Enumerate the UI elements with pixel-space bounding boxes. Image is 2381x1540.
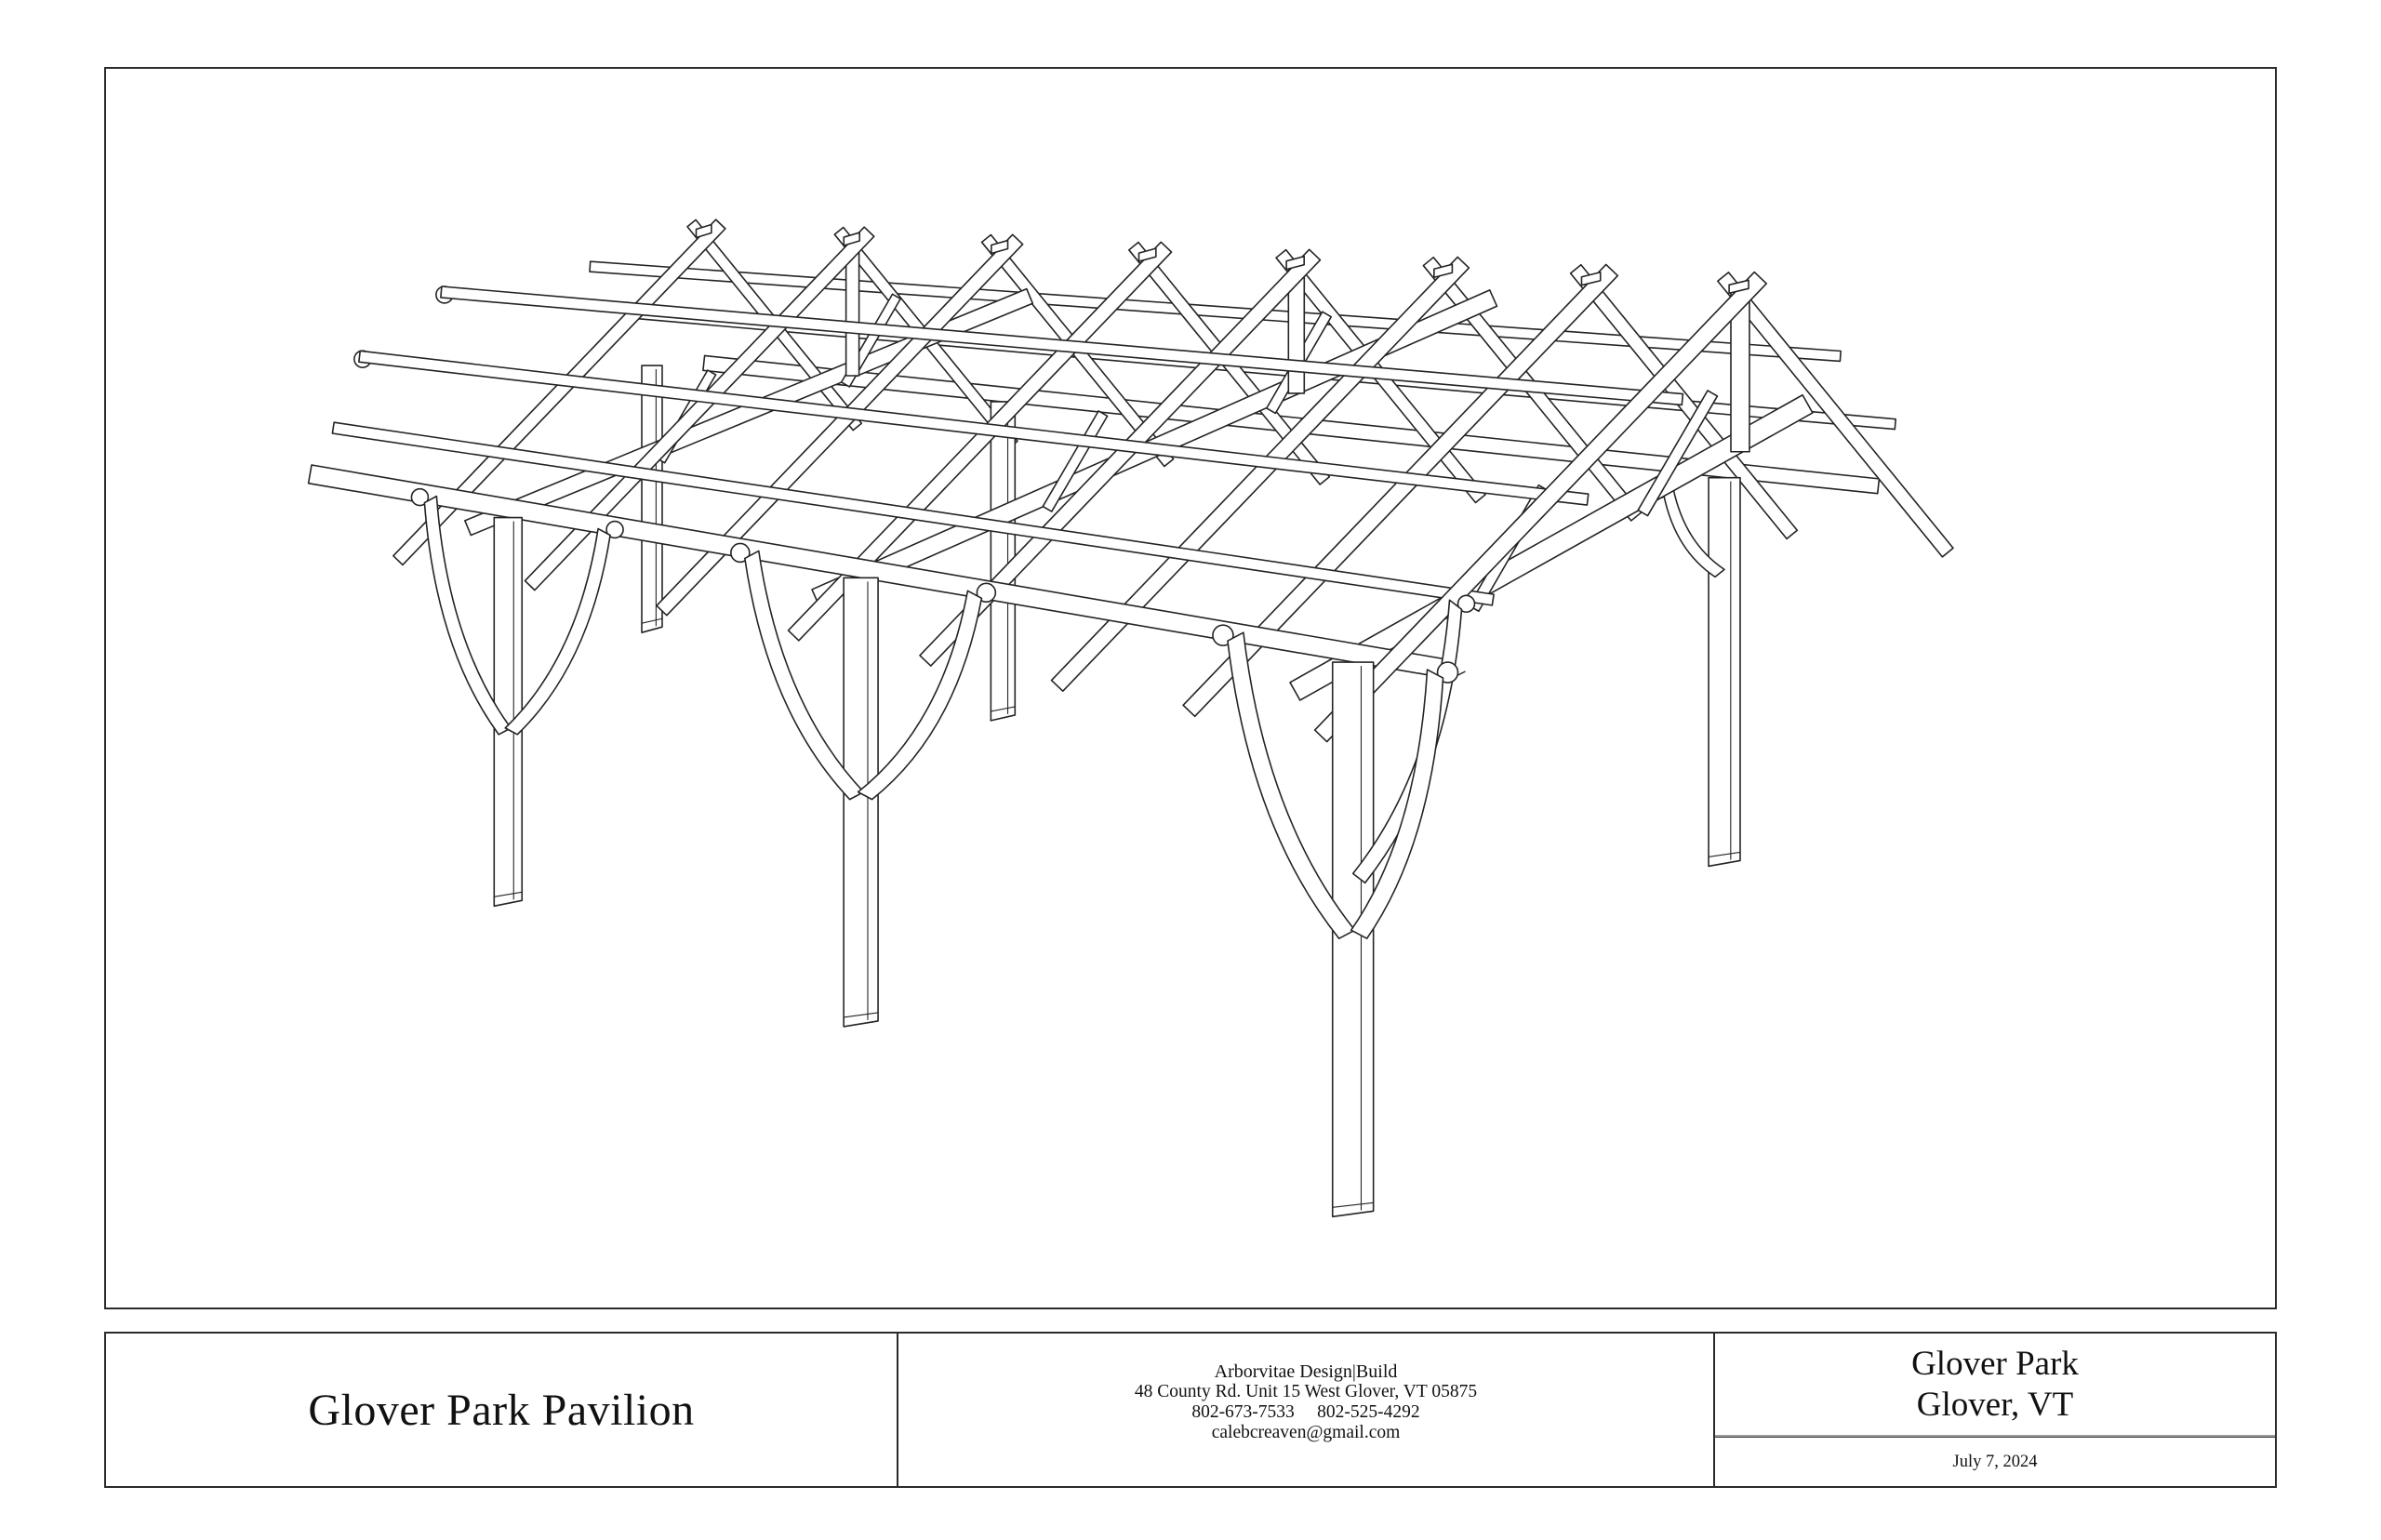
firm-email: calebcreaven@gmail.com xyxy=(1212,1423,1401,1443)
location-town: Glover, VT xyxy=(1917,1385,2073,1426)
title-block-project-cell: Glover Park Pavilion xyxy=(106,1334,897,1486)
title-block-location-cell: Glover Park Glover, VT July 7, 2024 xyxy=(1715,1334,2275,1486)
title-block: Glover Park Pavilion Arborvitae Design|B… xyxy=(104,1332,2277,1488)
drawing-viewport xyxy=(104,67,2277,1309)
post-front-mid xyxy=(844,577,878,1027)
firm-name: Arborvitae Design|Build xyxy=(1215,1361,1398,1382)
post-rear-near xyxy=(1709,478,1740,867)
title-block-firm-cell: Arborvitae Design|Build 48 County Rd. Un… xyxy=(897,1334,1715,1486)
post-front-near xyxy=(1333,662,1374,1216)
plan-sheet: Glover Park Pavilion Arborvitae Design|B… xyxy=(0,0,2381,1540)
sheet-date: July 7, 2024 xyxy=(1953,1453,2038,1472)
firm-phones: 802-673-7533 802-525-4292 xyxy=(1191,1402,1419,1423)
project-title: Glover Park Pavilion xyxy=(308,1385,694,1436)
date-cell: July 7, 2024 xyxy=(1715,1438,2275,1486)
location-name: Glover Park xyxy=(1911,1344,2079,1385)
post-rear-far xyxy=(642,365,662,632)
pavilion-line-drawing xyxy=(106,69,2275,1308)
location-lines: Glover Park Glover, VT xyxy=(1715,1334,2275,1435)
firm-address: 48 County Rd. Unit 15 West Glover, VT 05… xyxy=(1135,1382,1477,1402)
